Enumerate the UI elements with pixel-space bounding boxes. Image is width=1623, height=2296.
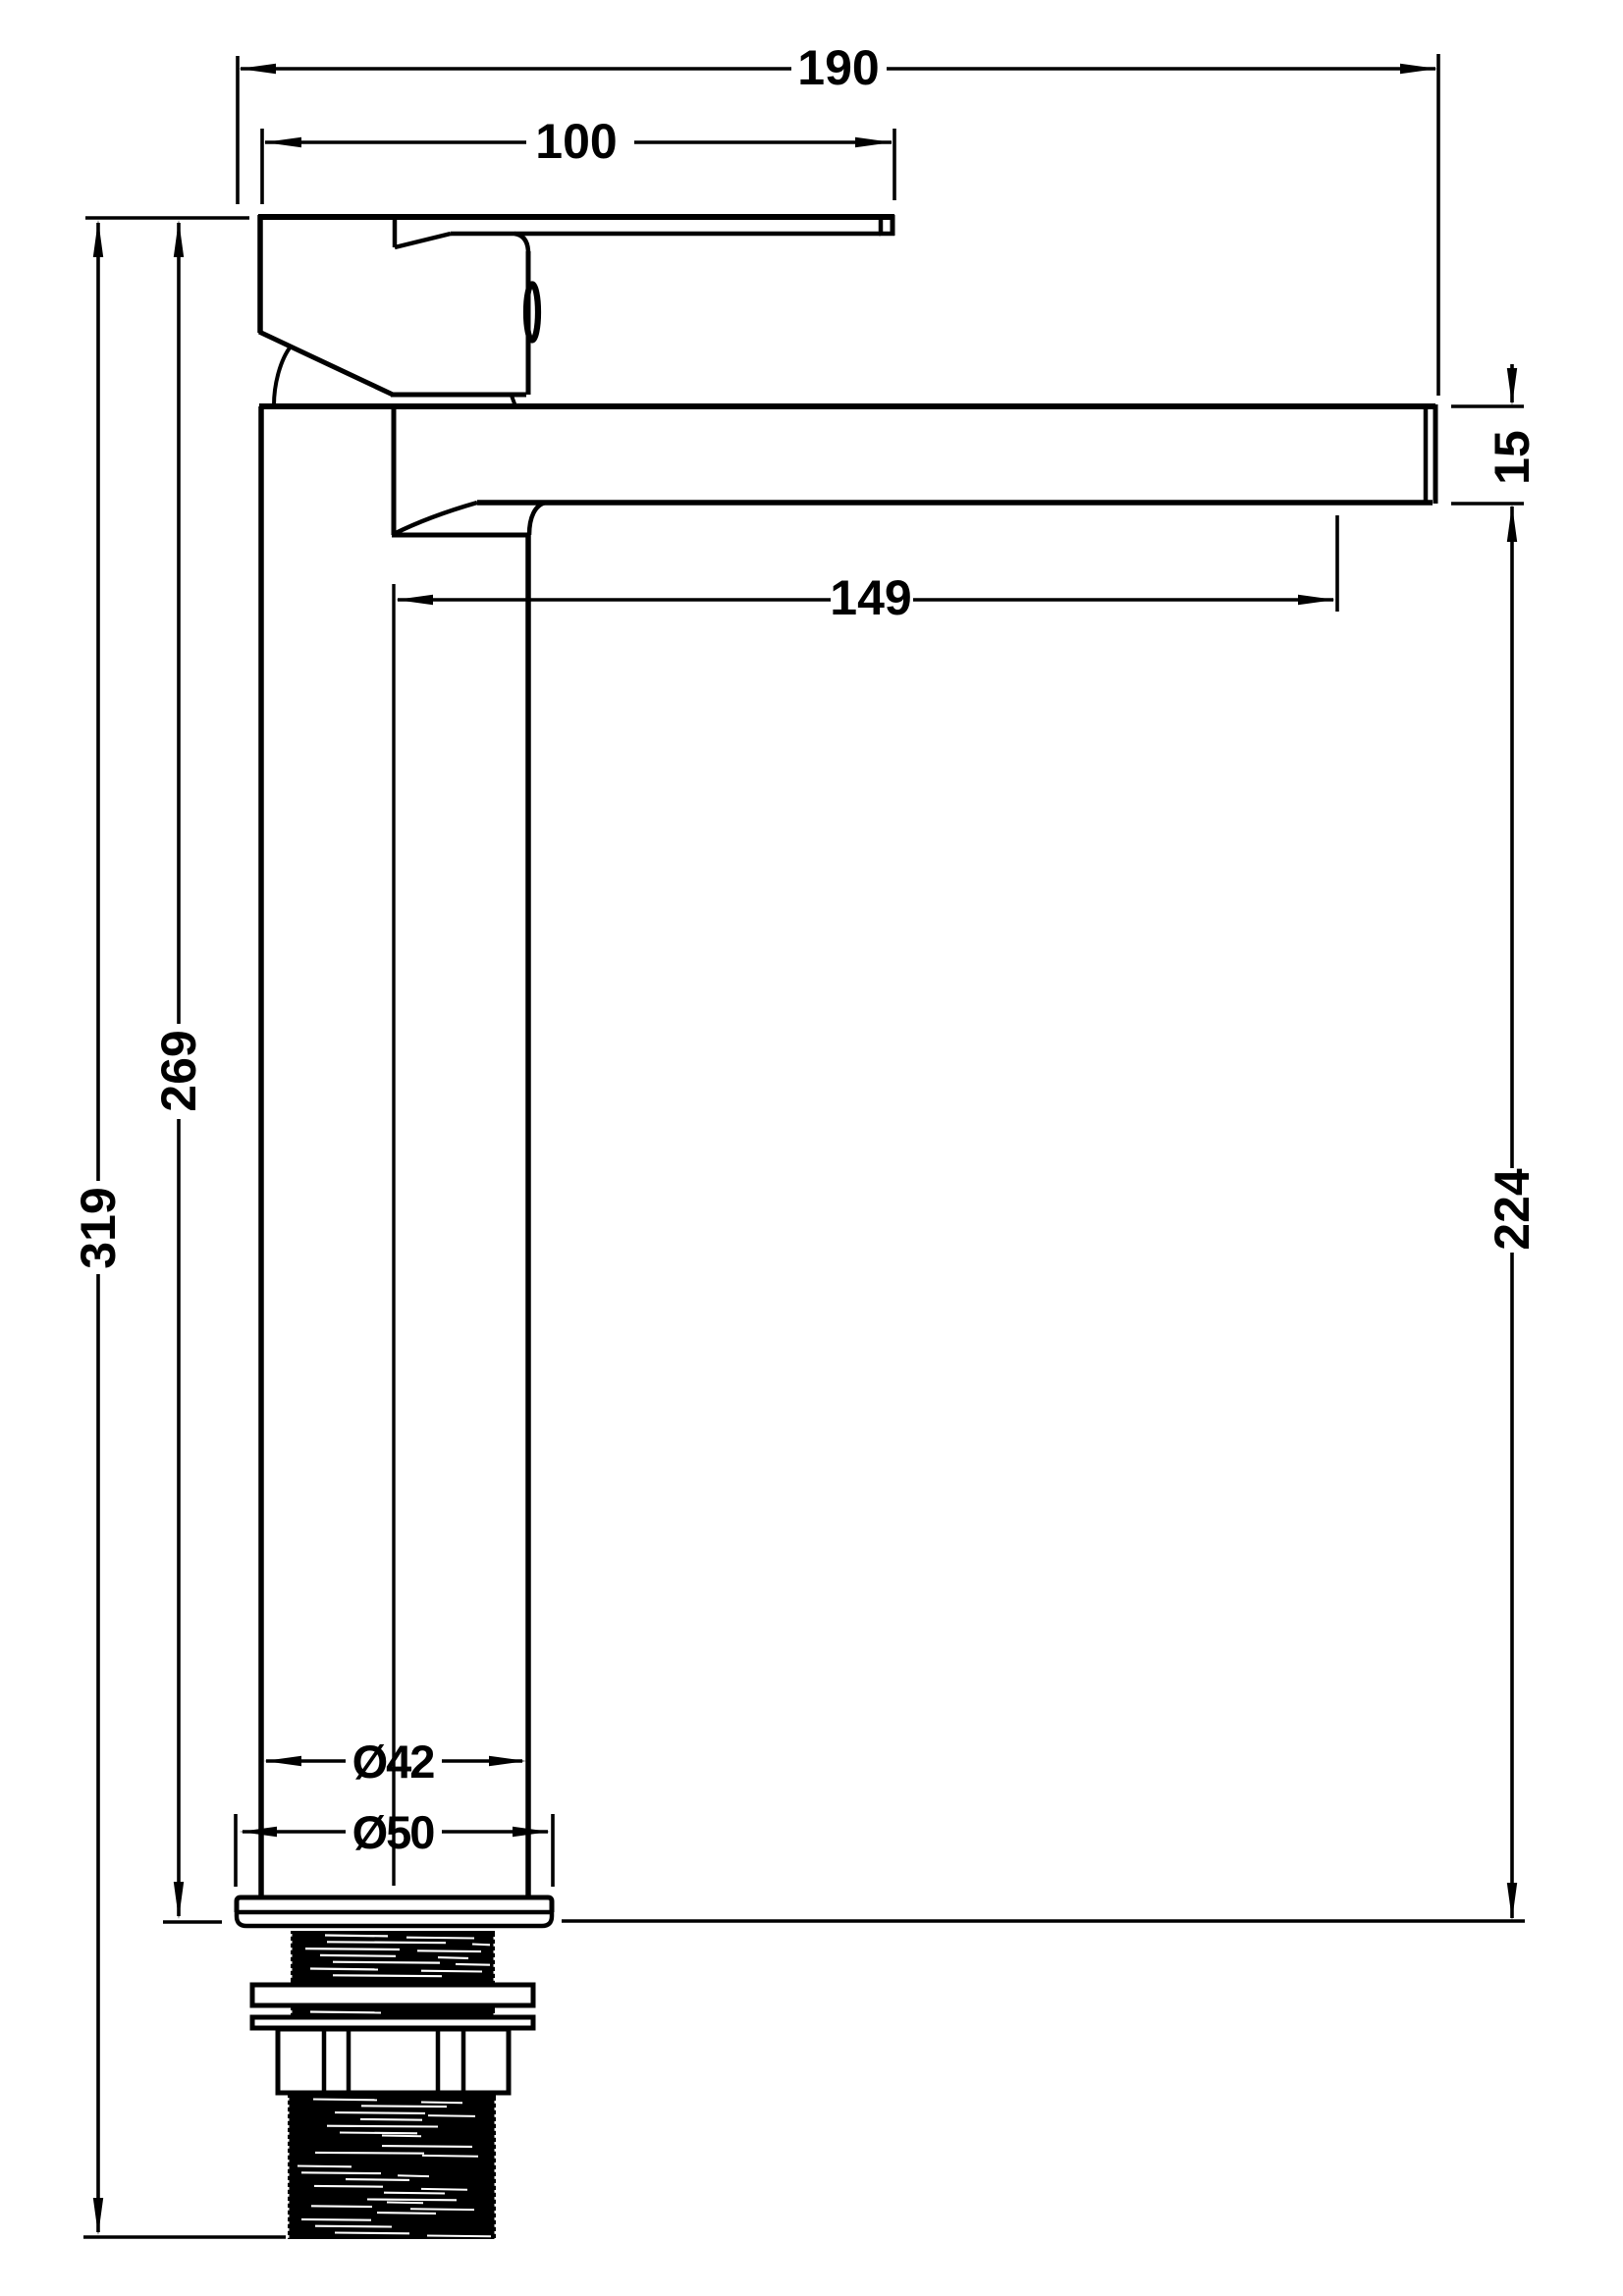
svg-text:149: 149 bbox=[830, 570, 911, 625]
svg-text:Ø50: Ø50 bbox=[352, 1806, 435, 1858]
svg-text:319: 319 bbox=[71, 1187, 126, 1268]
svg-text:Ø42: Ø42 bbox=[352, 1735, 435, 1788]
svg-text:100: 100 bbox=[535, 114, 617, 169]
svg-text:224: 224 bbox=[1485, 1168, 1540, 1251]
svg-text:190: 190 bbox=[797, 40, 879, 95]
svg-text:269: 269 bbox=[151, 1030, 206, 1111]
svg-text:15: 15 bbox=[1485, 430, 1540, 485]
